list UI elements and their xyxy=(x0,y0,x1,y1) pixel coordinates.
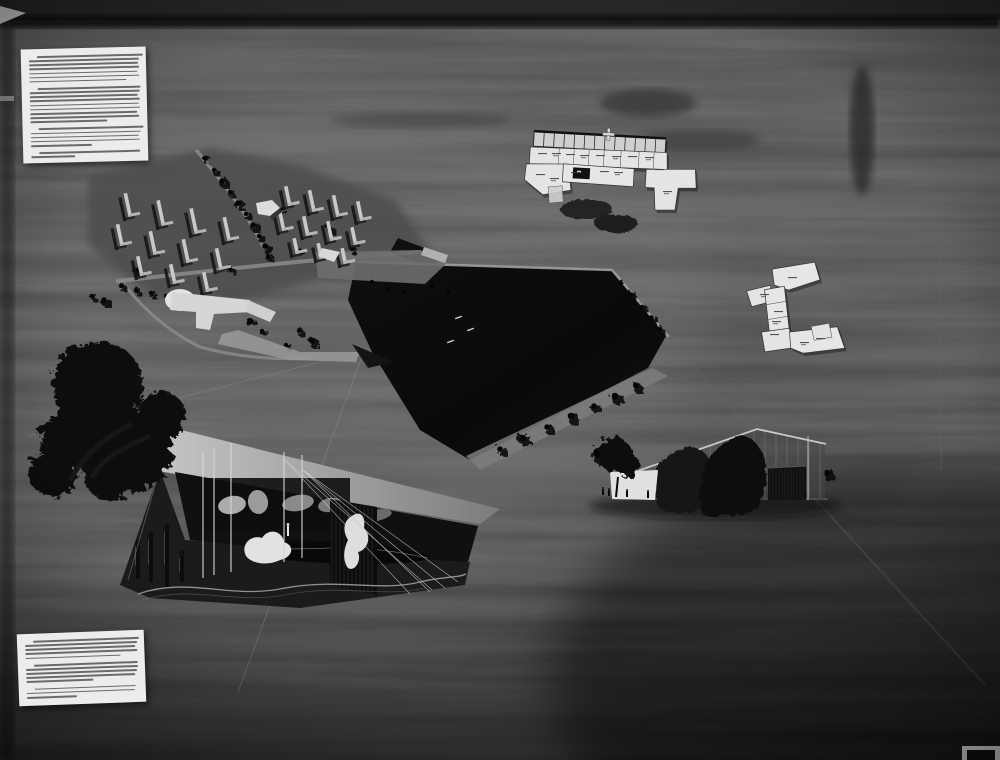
typed-text-line-illegible xyxy=(30,115,139,119)
typed-text-line-illegible xyxy=(30,102,139,106)
presentation-board-photo xyxy=(0,0,1000,760)
typed-text-line-illegible xyxy=(31,130,141,134)
typed-text-line-illegible xyxy=(31,138,140,142)
typed-text-line-illegible xyxy=(30,98,140,102)
typed-text-line-illegible xyxy=(29,66,139,70)
typed-text-line-illegible xyxy=(29,74,139,78)
typed-text-line-illegible xyxy=(27,695,77,699)
typed-text-line-illegible xyxy=(27,689,135,695)
board-scene xyxy=(0,0,1000,760)
typed-text-line-illegible xyxy=(30,120,107,124)
typed-text-line-illegible xyxy=(31,156,75,159)
annotation-card-lower xyxy=(17,630,147,707)
annotation-card-upper xyxy=(21,46,149,163)
typed-text-line-illegible xyxy=(29,79,126,83)
typed-text-line-illegible xyxy=(31,144,92,147)
photo-vignette xyxy=(0,0,1000,760)
typed-text-line-illegible xyxy=(29,70,137,74)
typed-text-line-illegible xyxy=(31,134,139,138)
